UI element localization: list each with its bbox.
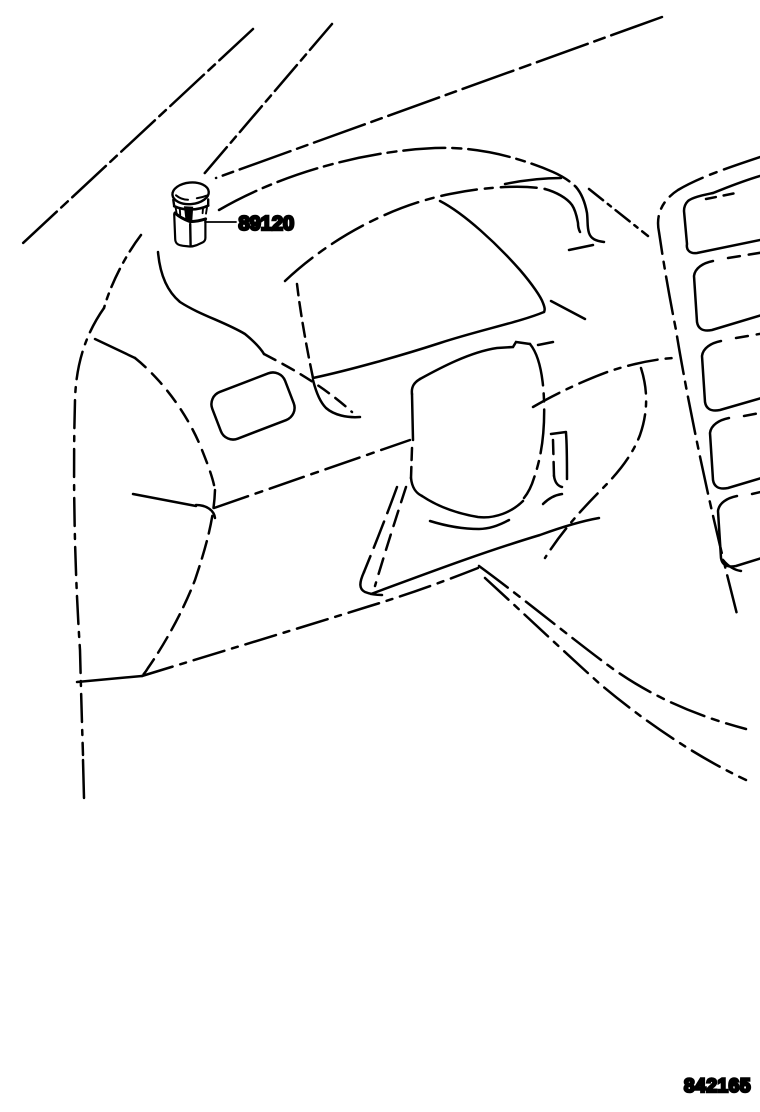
svg-text:842165: 842165 bbox=[684, 1076, 751, 1097]
svg-text:89120: 89120 bbox=[239, 213, 295, 235]
